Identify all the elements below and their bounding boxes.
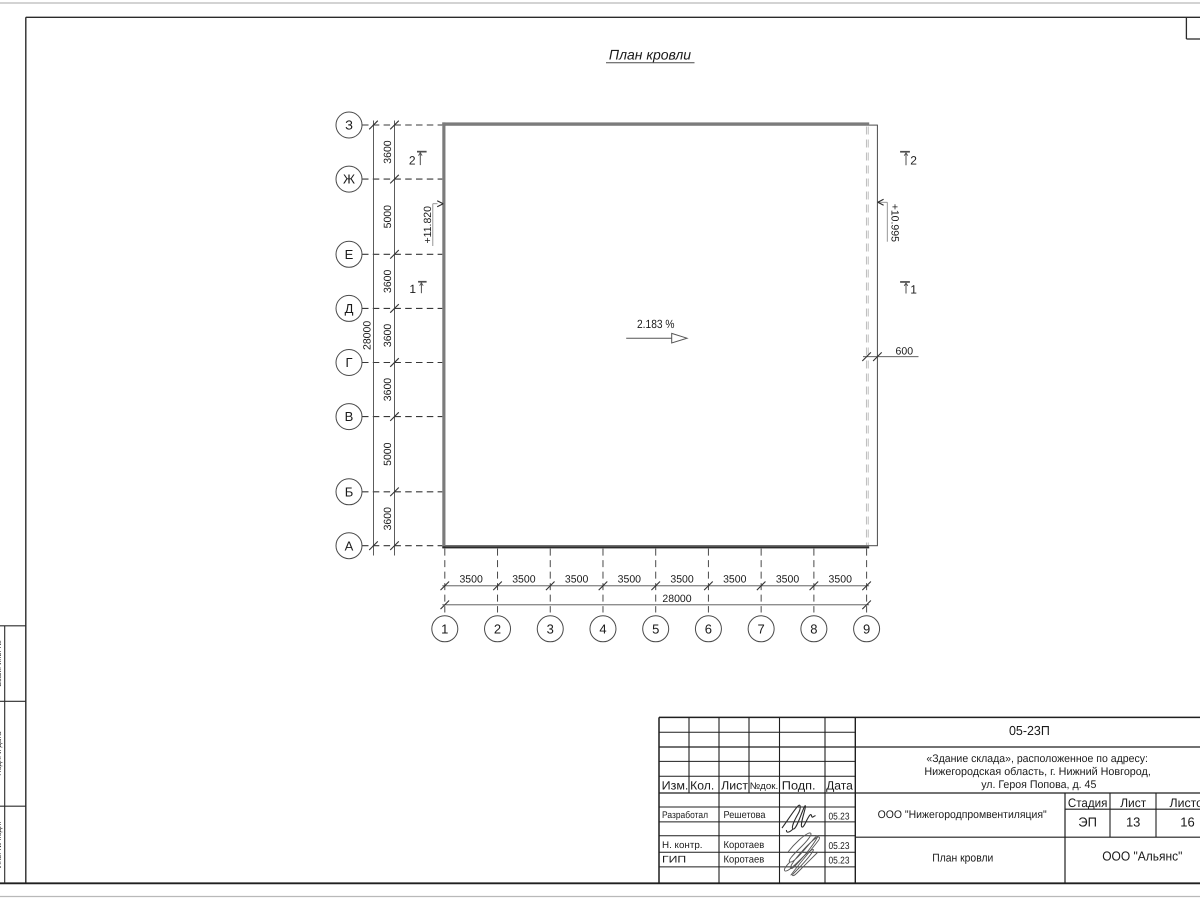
svg-text:3600: 3600 — [382, 378, 394, 402]
svg-text:Кол.: Кол. — [690, 778, 714, 792]
svg-text:Д: Д — [345, 301, 354, 316]
svg-text:5000: 5000 — [382, 442, 394, 466]
svg-text:Стадия: Стадия — [1068, 796, 1108, 810]
svg-text:3500: 3500 — [512, 573, 536, 585]
svg-text:Лист: Лист — [721, 778, 748, 792]
svg-text:3500: 3500 — [723, 573, 747, 585]
svg-text:А: А — [345, 538, 354, 553]
svg-text:Коротаев: Коротаев — [724, 855, 765, 866]
svg-text:4: 4 — [599, 621, 606, 636]
svg-text:ГИП: ГИП — [662, 855, 686, 866]
svg-text:8: 8 — [810, 621, 817, 636]
svg-text:ООО "Альянс": ООО "Альянс" — [1102, 849, 1183, 864]
svg-text:Лист: Лист — [1120, 796, 1146, 810]
svg-text:№док.: №док. — [750, 781, 779, 792]
svg-text:Инв. № подл.: Инв. № подл. — [0, 822, 3, 869]
svg-text:Разработал: Разработал — [662, 810, 708, 821]
svg-text:1: 1 — [409, 282, 416, 296]
svg-text:Коротаев: Коротаев — [724, 840, 765, 851]
svg-text:16: 16 — [1180, 815, 1194, 830]
svg-text:6: 6 — [705, 621, 712, 636]
svg-text:Листов: Листов — [1170, 796, 1200, 810]
svg-text:1: 1 — [910, 282, 917, 296]
svg-text:05.23: 05.23 — [829, 811, 850, 822]
svg-text:3500: 3500 — [670, 573, 694, 585]
svg-text:3500: 3500 — [618, 573, 642, 585]
svg-text:«Здание склада», расположенное: «Здание склада», расположенное по адресу… — [926, 753, 1148, 765]
svg-text:05-23П: 05-23П — [1009, 723, 1050, 738]
svg-text:Взам. инв. №: Взам. инв. № — [0, 640, 3, 686]
svg-text:В: В — [345, 409, 354, 424]
svg-text:3600: 3600 — [382, 140, 394, 164]
svg-text:28000: 28000 — [362, 321, 374, 350]
svg-text:3600: 3600 — [382, 270, 394, 294]
svg-text:2: 2 — [494, 621, 501, 636]
svg-text:3500: 3500 — [829, 573, 853, 585]
svg-text:5: 5 — [652, 621, 659, 636]
svg-text:Изм.: Изм. — [662, 778, 689, 792]
svg-text:План кровли: План кровли — [609, 47, 691, 63]
svg-text:05.23: 05.23 — [829, 841, 850, 852]
svg-text:Дата: Дата — [826, 778, 853, 792]
svg-text:3600: 3600 — [382, 324, 394, 348]
svg-text:ООО "Нижегородпромвентиляция": ООО "Нижегородпромвентиляция" — [878, 809, 1047, 821]
svg-text:Ж: Ж — [343, 172, 355, 187]
svg-text:План кровли: План кровли — [932, 852, 993, 864]
svg-text:ЭП: ЭП — [1078, 815, 1097, 830]
svg-text:05.23: 05.23 — [829, 855, 850, 866]
svg-text:Подп.: Подп. — [782, 778, 816, 792]
svg-text:3: 3 — [547, 621, 554, 636]
svg-text:2: 2 — [409, 154, 416, 168]
svg-text:ул. Героя Попова, д. 45: ул. Героя Попова, д. 45 — [981, 779, 1096, 791]
svg-text:3500: 3500 — [459, 573, 483, 585]
svg-text:Е: Е — [345, 247, 354, 262]
svg-text:3500: 3500 — [776, 573, 800, 585]
svg-text:9: 9 — [863, 621, 870, 636]
svg-text:Г: Г — [345, 355, 352, 370]
svg-text:3500: 3500 — [565, 573, 589, 585]
svg-text:28000: 28000 — [662, 593, 691, 605]
svg-text:Нижегородская область, г. Нижн: Нижегородская область, г. Нижний Новгоро… — [924, 766, 1151, 778]
svg-text:Б: Б — [345, 484, 354, 499]
svg-text:З: З — [345, 118, 353, 133]
svg-text:2.183 %: 2.183 % — [637, 317, 675, 331]
svg-text:1: 1 — [441, 621, 448, 636]
svg-text:7: 7 — [758, 621, 765, 636]
svg-text:+11.820: +11.820 — [422, 206, 434, 244]
svg-text:+10.995: +10.995 — [888, 204, 900, 242]
svg-text:2: 2 — [910, 154, 917, 168]
svg-text:Н. контр.: Н. контр. — [662, 840, 703, 851]
svg-text:600: 600 — [896, 346, 914, 358]
svg-text:5000: 5000 — [382, 205, 394, 229]
svg-text:Подп. и дата: Подп. и дата — [0, 731, 3, 776]
svg-text:3600: 3600 — [382, 507, 394, 531]
svg-text:13: 13 — [1126, 815, 1140, 830]
svg-text:Решетова: Решетова — [724, 810, 766, 821]
